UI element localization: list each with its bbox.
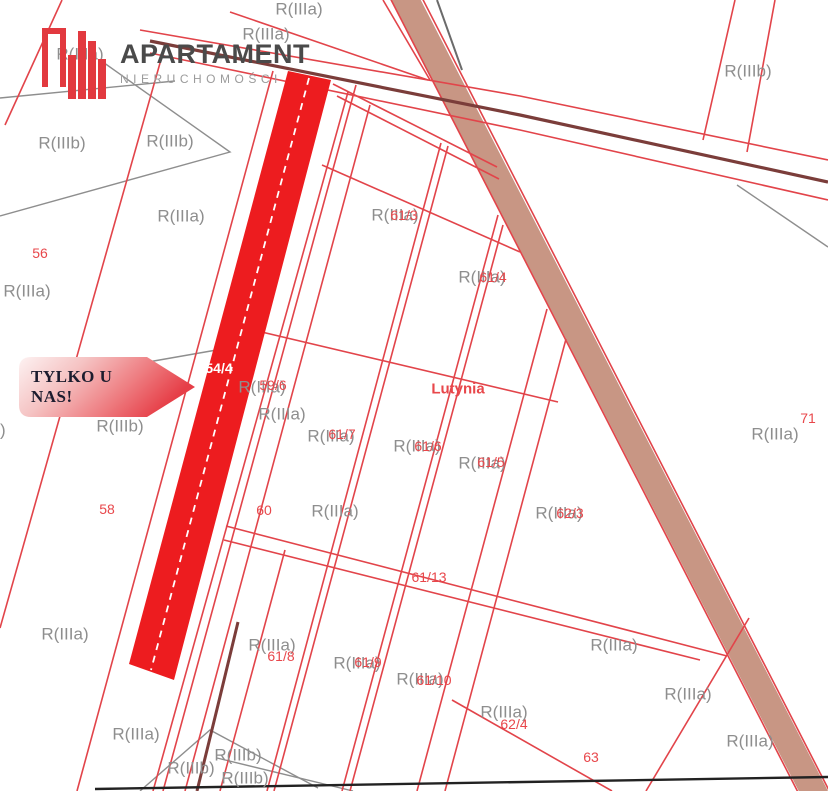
land-class-label: R(IIIb) <box>0 422 6 439</box>
land-class-label: R(IIIa) <box>275 1 322 18</box>
parcel-number-label: 61/5 <box>477 455 504 469</box>
exclusive-badge-text: TYLKO U NAS! <box>31 355 151 419</box>
land-class-label: R(IIIa) <box>751 426 798 443</box>
land-class-label: R(IIIa) <box>41 626 88 643</box>
brand-name: APARTAMENT <box>120 39 310 70</box>
land-class-label: R(IIIb) <box>146 133 193 150</box>
brand-subtitle: NIERUCHOMOŚCI <box>120 72 310 86</box>
brand-buildings-icon <box>40 25 110 100</box>
parcel-number-label: 61/3 <box>390 208 417 222</box>
land-class-label: R(IIIa) <box>258 406 305 423</box>
parcel-number-label: 61/13 <box>411 570 446 584</box>
parcel-number-label: 61/7 <box>328 427 355 441</box>
parcel-number-label: 71 <box>800 411 816 425</box>
land-class-label: R(IIIa) <box>726 733 773 750</box>
cadastral-map: R(IIIa)R(IIIa)R(IIIa)R(IIIb)R(IIIb)R(III… <box>0 0 828 791</box>
land-class-label: R(IIIb) <box>724 63 771 80</box>
parcel-number-label: 59/6 <box>259 378 286 392</box>
exclusive-badge: TYLKO U NAS! <box>17 355 197 419</box>
land-class-label: R(IIIb) <box>214 747 261 764</box>
highlight-parcel-number: 54/4 <box>205 361 232 375</box>
land-class-label: R(IIIb) <box>96 418 143 435</box>
land-class-label: R(IIIa) <box>311 503 358 520</box>
land-class-label: R(IIIb) <box>221 770 268 787</box>
parcel-number-label: 61/4 <box>479 270 506 284</box>
land-class-label: R(IIIa) <box>3 283 50 300</box>
place-name-label: Lutynia <box>431 382 484 397</box>
land-class-label: R(IIIa) <box>664 686 711 703</box>
parcel-number-label: 61/9 <box>354 655 381 669</box>
parcel-number-label: 63 <box>583 750 599 764</box>
land-class-label: R(IIIa) <box>157 208 204 225</box>
parcel-number-label: 61/10 <box>416 673 451 687</box>
parcel-number-label: 62/4 <box>500 717 527 731</box>
parcel-number-label: 61/6 <box>414 439 441 453</box>
brand-logo: APARTAMENT NIERUCHOMOŚCI <box>40 25 310 100</box>
parcel-number-label: 58 <box>99 502 115 516</box>
parcel-number-label: 56 <box>32 246 48 260</box>
parcel-number-label: 62/3 <box>556 506 583 520</box>
land-class-label: R(IIIb) <box>167 760 214 777</box>
land-class-label: R(IIIa) <box>590 637 637 654</box>
land-class-label: R(IIIb) <box>38 135 85 152</box>
parcel-number-label: 61/8 <box>267 649 294 663</box>
land-class-label: R(IIIa) <box>112 726 159 743</box>
parcel-number-label: 60 <box>256 503 272 517</box>
